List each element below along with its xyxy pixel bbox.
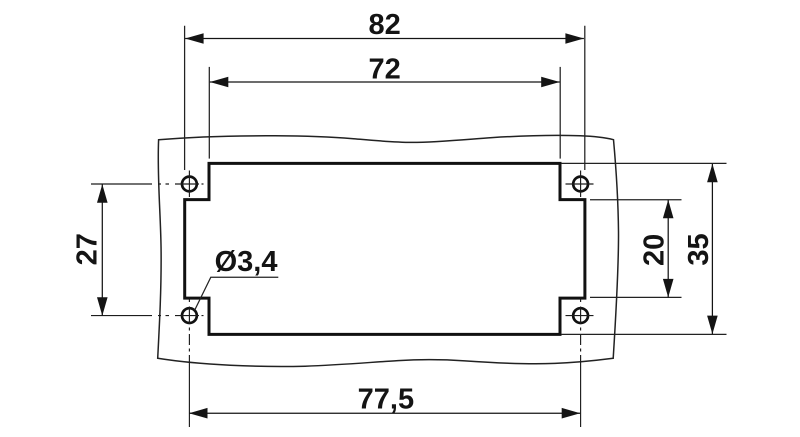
svg-text:72: 72 — [368, 53, 400, 85]
svg-text:Ø3,4: Ø3,4 — [215, 246, 278, 278]
svg-text:20: 20 — [638, 234, 670, 266]
svg-text:77,5: 77,5 — [358, 383, 414, 415]
svg-text:35: 35 — [683, 233, 715, 265]
svg-text:82: 82 — [368, 9, 400, 41]
svg-text:27: 27 — [72, 233, 104, 265]
